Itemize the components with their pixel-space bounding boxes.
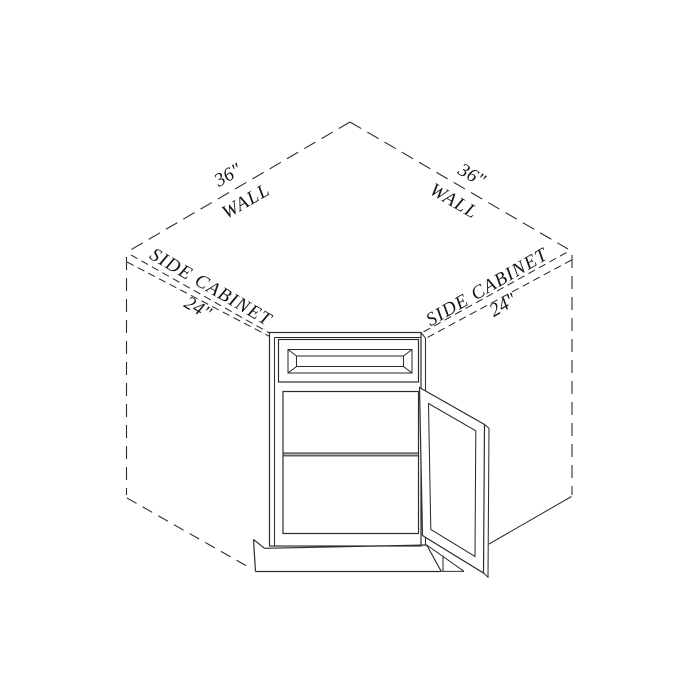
dimension-labels: 36" WALL 36" WALL SIDE CABINET 24" SIDE …: [146, 159, 552, 331]
corner-cabinet-body: [254, 333, 490, 578]
wall-left-dimension-label: 36": [210, 159, 246, 192]
wall-line-left: [127, 122, 350, 252]
wall-right-dimension-label: 36": [454, 159, 490, 192]
cabinet-face-frame: [270, 333, 422, 547]
diagram-canvas: 36" WALL 36" WALL SIDE CABINET 24" SIDE …: [0, 0, 700, 700]
side-cabinet-right-label: SIDE CABINET: [423, 244, 553, 331]
wall-line-right: [350, 122, 568, 249]
corner-cabinet-diagram: 36" WALL 36" WALL SIDE CABINET 24" SIDE …: [0, 0, 700, 700]
side-cabinet-left-label: SIDE CABINET: [146, 244, 276, 331]
wall-dimension-lines: [127, 122, 568, 252]
floor-line-left: [127, 498, 252, 569]
cabinet-door-open: [420, 388, 490, 578]
floor-line-right: [489, 497, 572, 545]
